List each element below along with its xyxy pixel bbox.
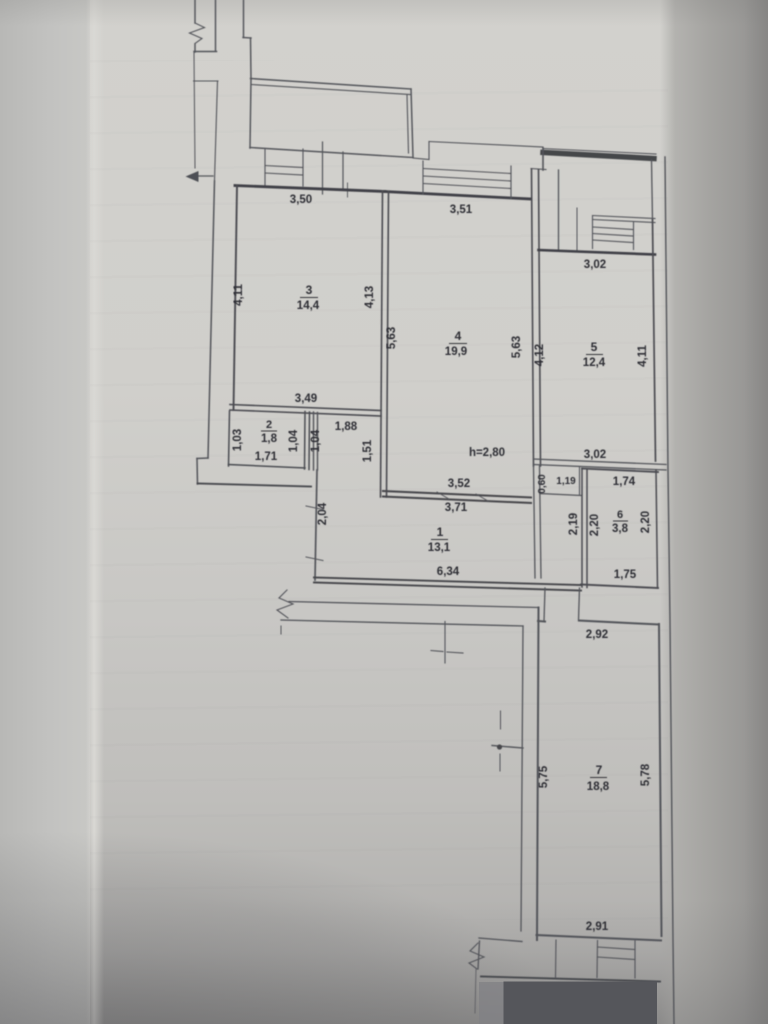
svg-text:2,19: 2,19 (568, 513, 580, 535)
svg-text:3,50: 3,50 (290, 194, 312, 206)
svg-text:1,19: 1,19 (556, 476, 576, 487)
svg-text:2,20: 2,20 (640, 511, 652, 533)
svg-text:12,4: 12,4 (583, 357, 606, 369)
svg-text:2,92: 2,92 (586, 629, 608, 641)
svg-text:1,71: 1,71 (255, 451, 278, 463)
svg-text:19,9: 19,9 (445, 346, 467, 358)
svg-text:14,4: 14,4 (297, 300, 320, 312)
svg-text:6,34: 6,34 (437, 566, 460, 578)
svg-text:1,04: 1,04 (310, 429, 322, 452)
svg-text:18,8: 18,8 (587, 781, 610, 793)
svg-text:4,11: 4,11 (233, 284, 245, 306)
svg-text:3,49: 3,49 (295, 393, 317, 405)
svg-text:6: 6 (617, 509, 623, 521)
svg-text:1: 1 (437, 525, 444, 539)
svg-text:3,71: 3,71 (445, 502, 468, 514)
svg-text:1,75: 1,75 (614, 569, 637, 581)
svg-text:3,52: 3,52 (448, 478, 470, 490)
svg-text:1,51: 1,51 (362, 439, 374, 462)
svg-text:13,1: 13,1 (428, 542, 451, 554)
svg-text:1,04: 1,04 (288, 429, 300, 452)
svg-text:h=2,80: h=2,80 (469, 447, 505, 459)
svg-text:5,78: 5,78 (640, 763, 652, 786)
svg-text:3,02: 3,02 (584, 449, 606, 461)
svg-text:7: 7 (596, 763, 603, 777)
svg-text:3: 3 (306, 283, 313, 297)
svg-text:3,02: 3,02 (584, 259, 606, 271)
svg-text:5,63: 5,63 (386, 327, 398, 349)
svg-text:3,51: 3,51 (450, 204, 473, 216)
svg-text:4,12: 4,12 (534, 344, 546, 366)
svg-text:4,11: 4,11 (637, 345, 649, 367)
svg-text:4: 4 (455, 329, 462, 343)
svg-text:2,91: 2,91 (586, 921, 609, 933)
svg-text:3,8: 3,8 (612, 523, 629, 535)
svg-text:5,63: 5,63 (511, 336, 523, 358)
svg-text:1,03: 1,03 (232, 429, 244, 451)
svg-text:5: 5 (591, 340, 598, 354)
svg-text:2,04: 2,04 (317, 502, 329, 525)
svg-text:1,74: 1,74 (613, 476, 636, 488)
svg-text:2: 2 (266, 419, 272, 431)
svg-text:2,20: 2,20 (589, 514, 601, 536)
svg-text:1,88: 1,88 (335, 421, 358, 433)
svg-text:1,8: 1,8 (261, 433, 278, 445)
svg-text:5,75: 5,75 (538, 765, 550, 788)
svg-text:4,13: 4,13 (364, 286, 376, 308)
svg-text:0,60: 0,60 (537, 474, 548, 494)
